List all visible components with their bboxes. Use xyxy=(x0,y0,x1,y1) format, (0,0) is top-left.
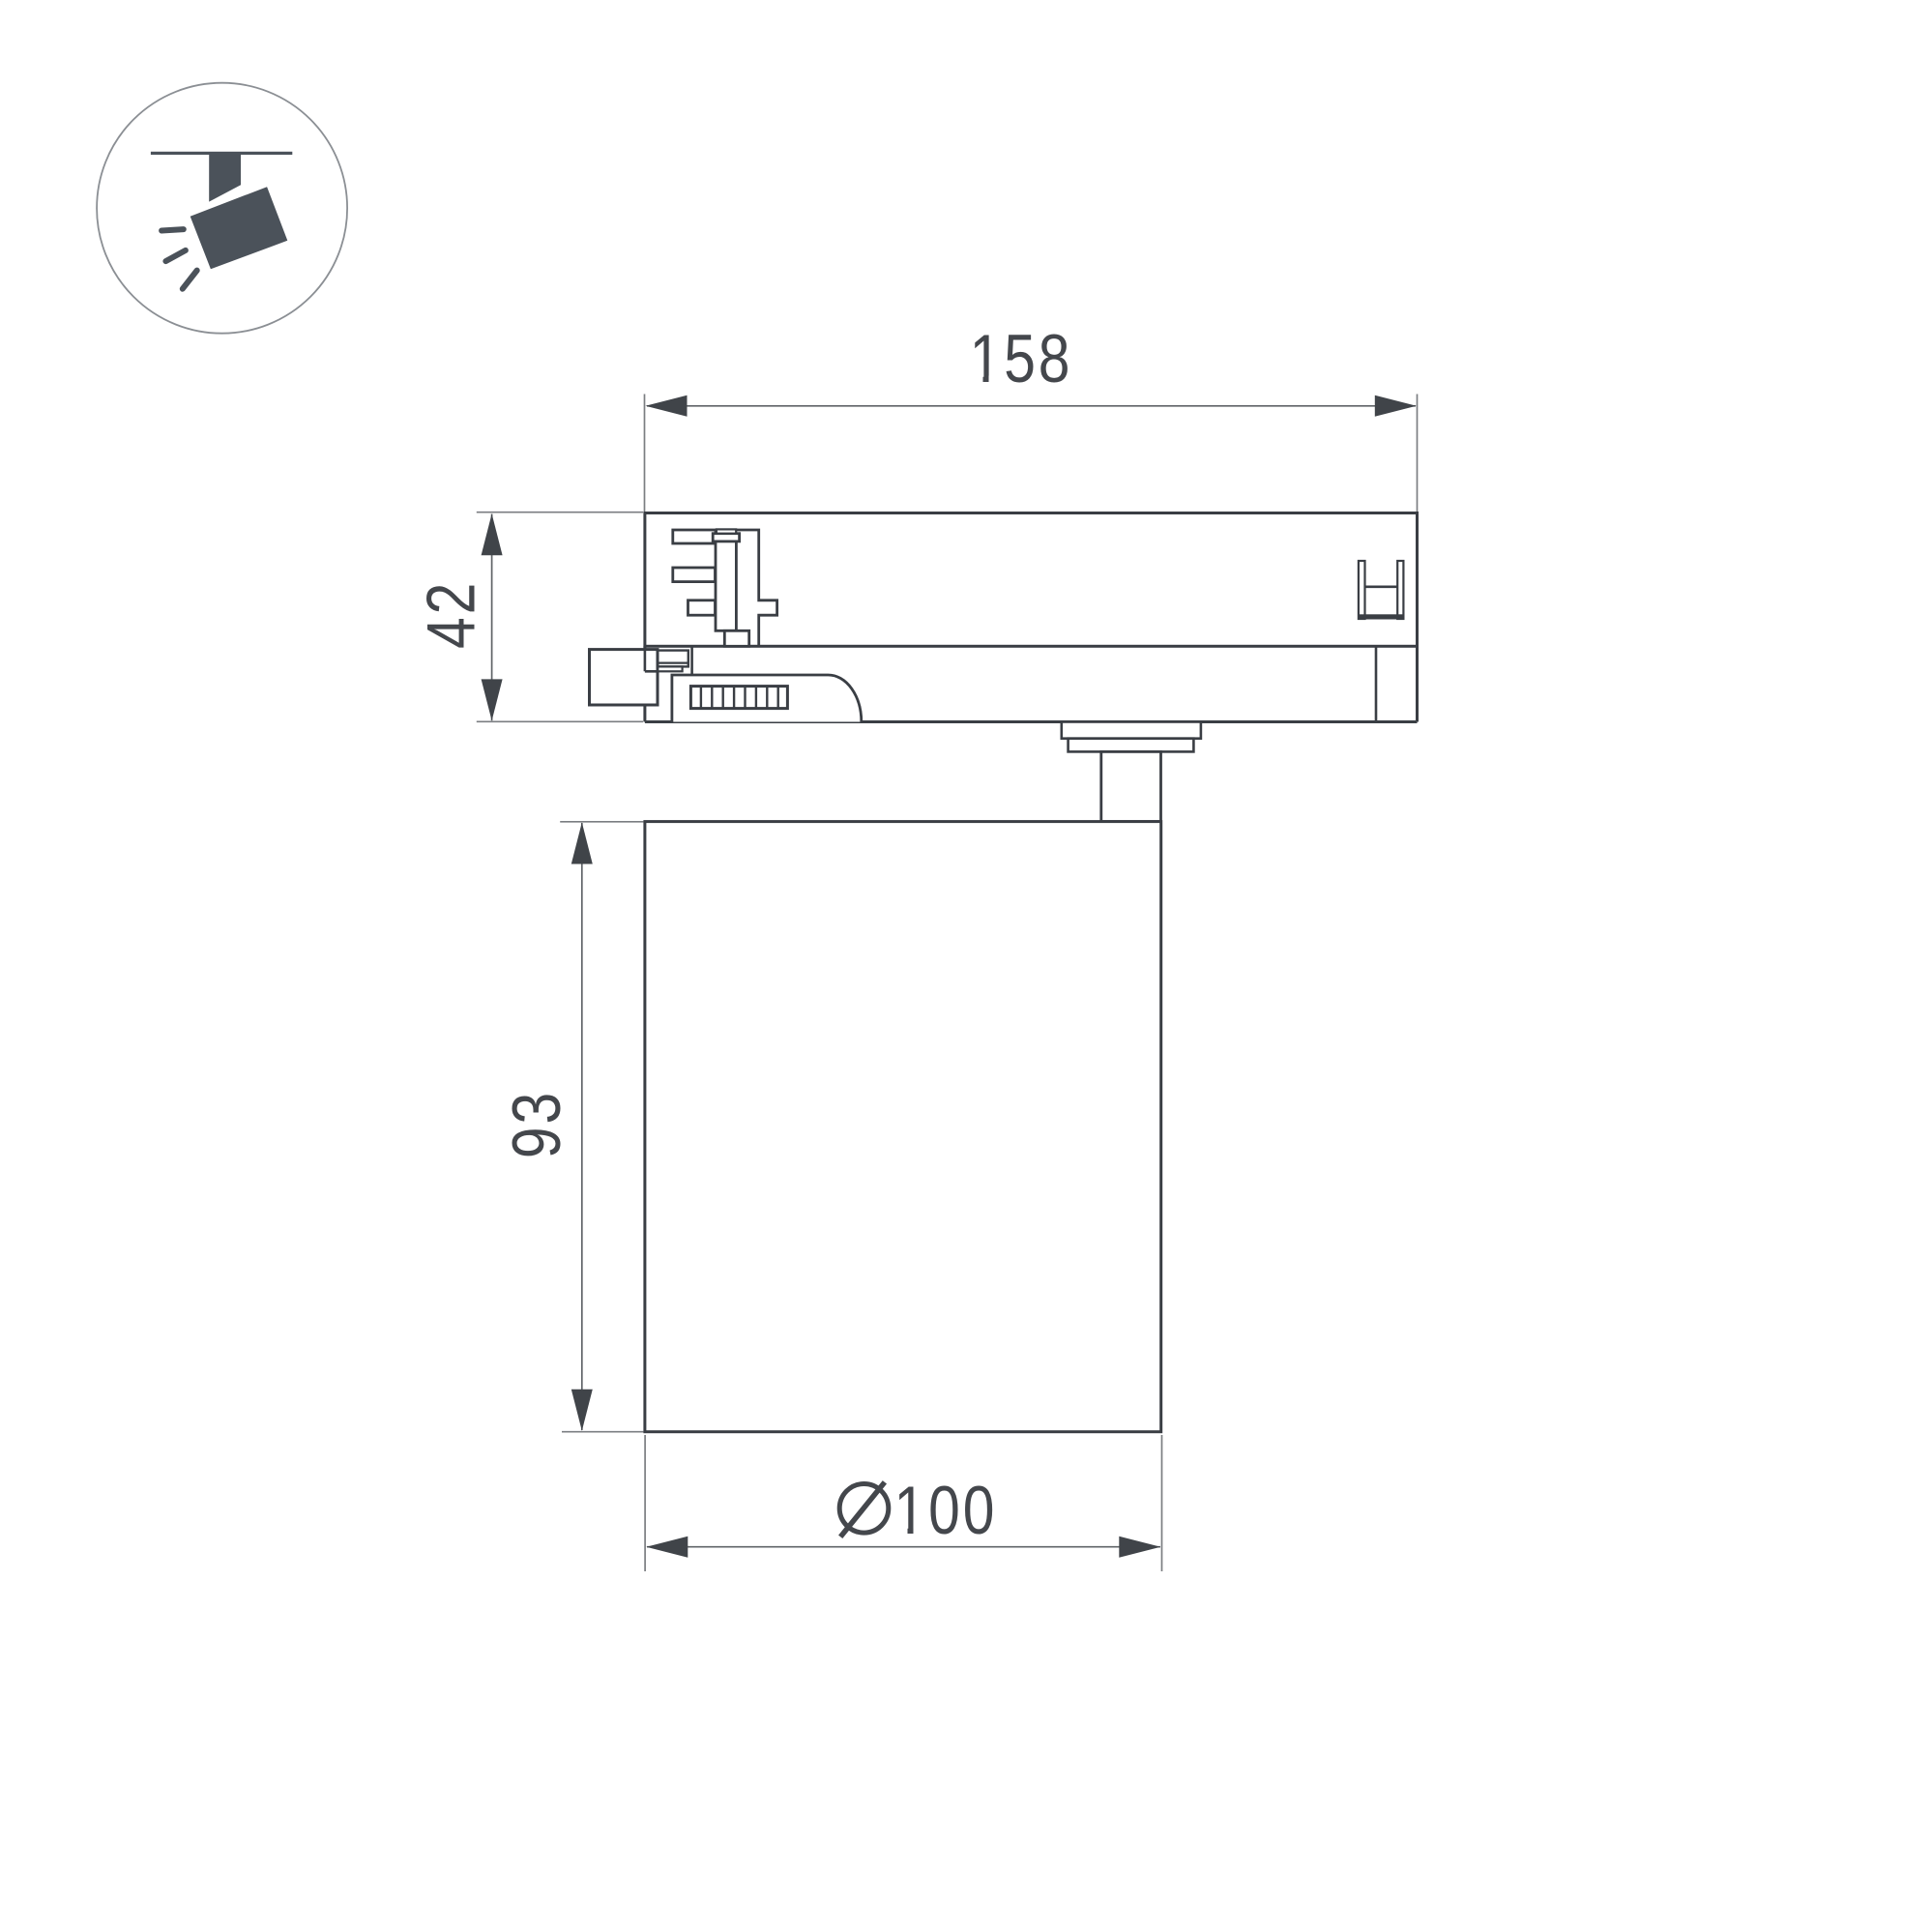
svg-text:158: 158 xyxy=(970,320,1073,396)
svg-text:42: 42 xyxy=(412,580,488,649)
svg-text:100: 100 xyxy=(893,1472,997,1548)
svg-text:93: 93 xyxy=(498,1090,574,1158)
